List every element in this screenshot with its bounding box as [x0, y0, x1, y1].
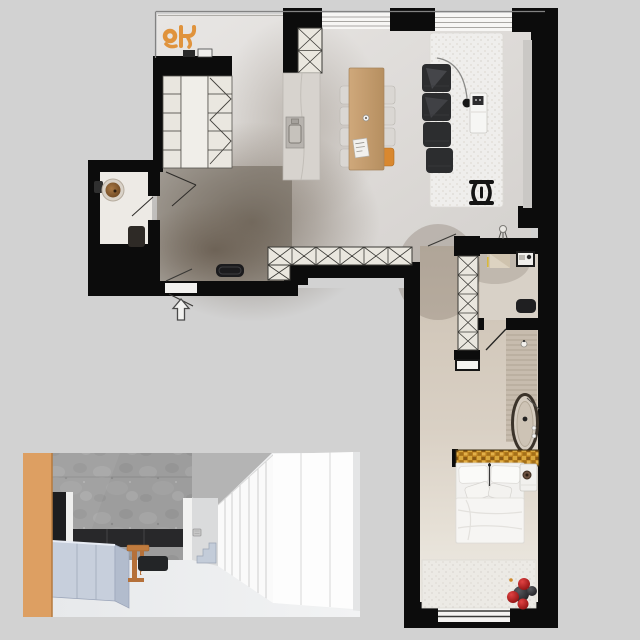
inset-render: [23, 452, 360, 617]
wardrobe-header-wall: [153, 56, 232, 76]
inset-closet-panels: [273, 452, 360, 614]
kitchen-pier: [283, 8, 298, 73]
floor-plan-svg: [0, 0, 640, 640]
shoe-bench: [216, 264, 244, 277]
entrance-door-leaf: [165, 283, 197, 293]
curtain-strip: [523, 40, 532, 208]
cooktop: [286, 117, 304, 148]
red-sphere: [518, 578, 530, 590]
column-bottom-cap: [454, 350, 480, 360]
toilet: [128, 226, 145, 247]
table-cup-center: [365, 117, 367, 119]
duvet: [456, 498, 524, 543]
floor-plan-canvas: [0, 0, 640, 640]
study-bottom-wall: [506, 318, 538, 330]
study-bench: [516, 299, 536, 313]
right-wall: [531, 8, 558, 226]
left-wall: [153, 56, 163, 172]
wing-right-wall: [538, 226, 558, 628]
inset-dark-sofa: [138, 556, 168, 575]
inset-dark-doorway: [52, 492, 66, 543]
wc-right-wall-b: [148, 220, 160, 248]
headboard-lamp: [488, 464, 491, 467]
bed: [456, 463, 524, 543]
tiny-orange-dot: [509, 578, 513, 582]
tub-knob: [532, 426, 536, 430]
basin-bowl: [106, 183, 121, 198]
bedroom-window: [438, 606, 510, 622]
table-magazine: [353, 138, 369, 158]
modular-sofa: [422, 64, 453, 173]
pillow: [459, 465, 489, 483]
tub-drain: [523, 417, 528, 422]
red-sphere: [507, 591, 519, 603]
red-sphere: [518, 599, 529, 610]
window-band-1: [322, 13, 390, 29]
basin-drain: [114, 190, 117, 193]
inset-blue-cabinets: [52, 541, 129, 608]
wc-bottom-wall: [88, 244, 160, 296]
column-top-cap: [454, 236, 480, 256]
tall-kitchen-cabinet: [298, 28, 322, 73]
wardrobe-center-panel: [181, 76, 208, 168]
decor-box-dark: [183, 50, 195, 57]
bathtub: [513, 395, 540, 452]
wall-basin: [456, 360, 479, 370]
inset-orange-panel: [23, 453, 52, 617]
right-wall-step: [518, 206, 558, 228]
window-band-2: [435, 13, 512, 31]
wing-left-wall: [404, 262, 420, 628]
inset-right-margin: [353, 452, 360, 614]
wc-right-wall-a: [148, 172, 160, 196]
inset-door-trim: [66, 492, 73, 543]
tub-knob: [532, 434, 536, 438]
living-bottom-wall: [288, 265, 420, 278]
inset-trim-sliver: [183, 498, 192, 560]
coffee-table: [470, 93, 487, 133]
desk-paper: [519, 255, 525, 260]
decor-tray: [198, 49, 212, 57]
nightstand: [520, 464, 537, 491]
desk-item: [527, 255, 531, 259]
corridor-wardrobe-column: [458, 256, 478, 350]
kitchen: [283, 73, 320, 180]
pillow: [491, 466, 521, 484]
shelf-column-left: [163, 76, 181, 168]
inset-wall-switch: [193, 529, 201, 536]
